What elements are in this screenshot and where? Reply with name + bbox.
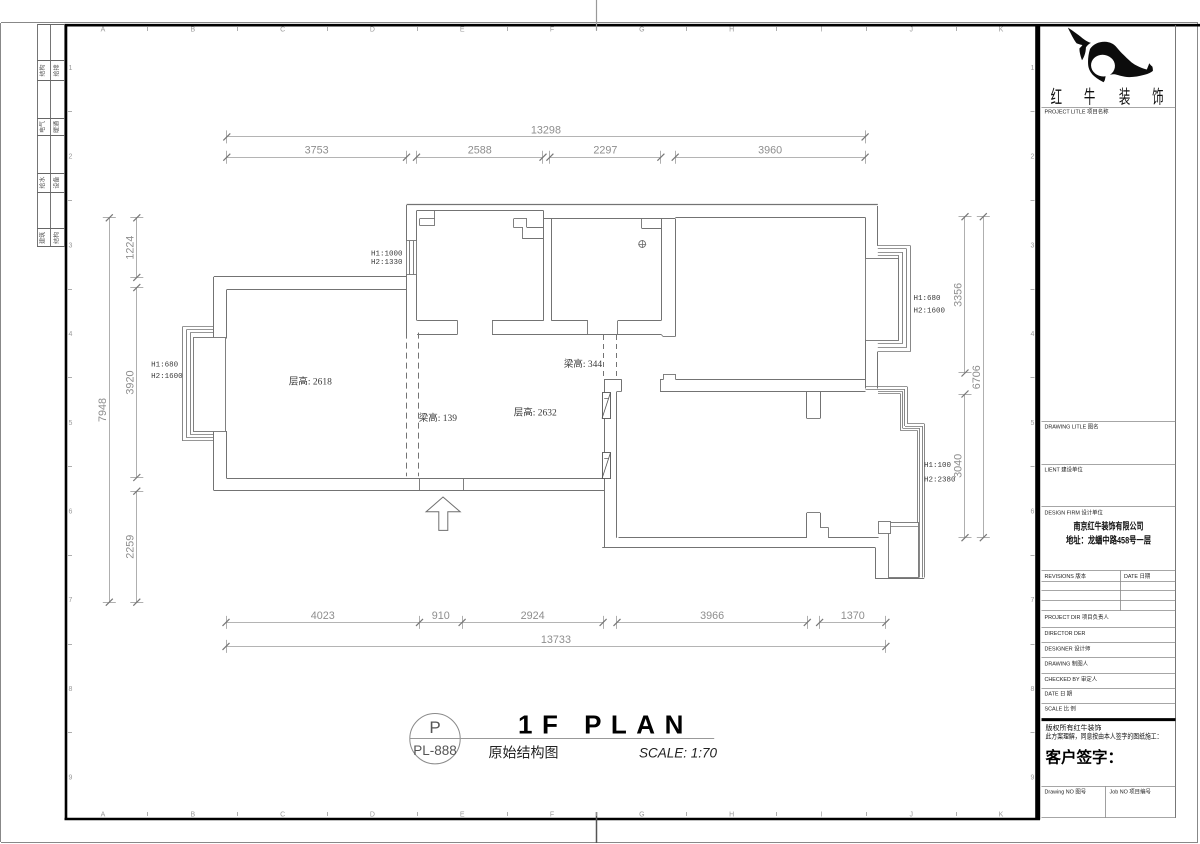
svg-text:LIENT 建设单位: LIENT 建设单位 (1045, 466, 1084, 474)
svg-text:3920: 3920 (124, 371, 136, 395)
svg-text:A: A (101, 812, 106, 819)
svg-text:D: D (370, 27, 375, 34)
svg-text:6: 6 (1031, 509, 1035, 516)
svg-text:版权所有红牛装饰: 版权所有红牛装饰 (1046, 723, 1102, 732)
svg-text:9: 9 (1031, 775, 1035, 782)
svg-text:1: 1 (69, 65, 73, 72)
svg-text:C: C (280, 812, 285, 819)
svg-text:4023: 4023 (311, 610, 335, 622)
svg-text:7: 7 (1031, 597, 1035, 604)
svg-text:E: E (460, 27, 465, 34)
svg-text:1: 1 (1031, 65, 1035, 72)
svg-text:G: G (639, 27, 644, 34)
svg-text:梁高: 344: 梁高: 344 (564, 358, 603, 370)
svg-text:DATE 日 期: DATE 日 期 (1045, 691, 1073, 698)
svg-text:8: 8 (1031, 686, 1035, 693)
svg-text:F: F (550, 812, 554, 819)
svg-text:1370: 1370 (841, 610, 865, 622)
svg-text:Drawing NO 图号: Drawing NO 图号 (1045, 788, 1087, 796)
svg-text:2: 2 (1031, 154, 1035, 161)
svg-text:暖通: 暖通 (52, 121, 60, 133)
svg-text:层高: 2632: 层高: 2632 (514, 407, 557, 419)
svg-text:地址：龙蟠中路458号一层: 地址：龙蟠中路458号一层 (1066, 535, 1151, 547)
svg-text:原始结构图: 原始结构图 (489, 745, 559, 761)
svg-text:电气: 电气 (39, 121, 47, 133)
svg-text:6706: 6706 (971, 365, 983, 389)
svg-text:H2:1600: H2:1600 (914, 308, 946, 316)
svg-text:DRAWING 制图人: DRAWING 制图人 (1045, 660, 1089, 668)
svg-text:建筑: 建筑 (39, 232, 47, 244)
svg-text:2259: 2259 (124, 535, 136, 559)
svg-text:饰: 饰 (1152, 87, 1163, 109)
svg-text:A: A (101, 27, 106, 34)
svg-text:结构: 结构 (39, 64, 47, 76)
svg-text:B: B (190, 812, 195, 819)
svg-text:9: 9 (69, 775, 73, 782)
svg-text:5: 5 (69, 420, 73, 427)
svg-text:DIRECTOR DER: DIRECTOR DER (1045, 631, 1086, 637)
svg-text:DRAWING LITLE 图名: DRAWING LITLE 图名 (1045, 423, 1099, 431)
svg-text:SCALE 比 例: SCALE 比 例 (1045, 705, 1076, 713)
svg-text:Job NO 项目编号: Job NO 项目编号 (1110, 788, 1152, 796)
svg-text:2588: 2588 (468, 145, 492, 157)
svg-text:6: 6 (69, 509, 73, 516)
svg-text:1F PLAN: 1F PLAN (518, 710, 693, 740)
svg-text:DESIGNER 设计师: DESIGNER 设计师 (1045, 645, 1091, 653)
svg-text:E: E (460, 812, 465, 819)
svg-text:3356: 3356 (953, 283, 965, 307)
svg-text:4: 4 (69, 331, 73, 338)
svg-text:PROJECT DIR 项目负责人: PROJECT DIR 项目负责人 (1045, 613, 1110, 621)
svg-text:给水: 给水 (39, 177, 47, 189)
svg-text:3753: 3753 (305, 145, 329, 157)
svg-text:此方案理解，同意按由本人签字的图纸施工：: 此方案理解，同意按由本人签字的图纸施工： (1046, 732, 1163, 741)
svg-text:P: P (429, 718, 440, 737)
svg-text:DESIGN FIRM 设计单位: DESIGN FIRM 设计单位 (1045, 509, 1104, 517)
svg-text:牛: 牛 (1084, 87, 1095, 109)
svg-text:K: K (999, 27, 1004, 34)
svg-text:设备: 设备 (52, 177, 60, 189)
svg-text:结构: 结构 (52, 232, 60, 244)
svg-text:DATE 日期: DATE 日期 (1124, 573, 1150, 580)
svg-text:H2:1330: H2:1330 (371, 259, 403, 267)
svg-text:H1:680: H1:680 (914, 295, 942, 303)
svg-text:J: J (909, 812, 913, 819)
svg-text:梁高: 139: 梁高: 139 (419, 412, 458, 424)
svg-text:2924: 2924 (521, 610, 545, 622)
svg-text:南京红牛装饰有限公司: 南京红牛装饰有限公司 (1074, 521, 1144, 533)
svg-text:I: I (820, 812, 822, 819)
svg-text:H: H (729, 812, 734, 819)
svg-text:H1:680: H1:680 (151, 362, 179, 370)
svg-text:CHECKED BY 审定人: CHECKED BY 审定人 (1045, 675, 1098, 683)
svg-text:3: 3 (69, 242, 73, 249)
svg-text:13298: 13298 (531, 124, 561, 136)
svg-text:红: 红 (1051, 87, 1062, 109)
svg-text:H1:100: H1:100 (924, 462, 952, 470)
svg-text:H2:1600: H2:1600 (151, 373, 183, 381)
svg-text:D: D (370, 812, 375, 819)
svg-text:REVISIONS 版本: REVISIONS 版本 (1045, 572, 1087, 580)
svg-text:装: 装 (1119, 87, 1130, 109)
svg-text:SCALE: 1:70: SCALE: 1:70 (639, 746, 718, 761)
svg-text:H1:1000: H1:1000 (371, 251, 403, 259)
svg-text:K: K (999, 812, 1004, 819)
svg-text:PL-888: PL-888 (413, 743, 457, 758)
svg-text:C: C (280, 27, 285, 34)
svg-text:B: B (190, 27, 195, 34)
svg-text:8: 8 (69, 686, 73, 693)
svg-text:2: 2 (69, 154, 73, 161)
svg-text:层高: 2618: 层高: 2618 (289, 376, 332, 388)
svg-text:3960: 3960 (758, 145, 782, 157)
svg-text:4: 4 (1031, 331, 1035, 338)
svg-text:F: F (550, 27, 554, 34)
svg-text:H: H (729, 27, 734, 34)
svg-text:3966: 3966 (700, 610, 724, 622)
svg-text:5: 5 (1031, 420, 1035, 427)
svg-text:1224: 1224 (124, 236, 136, 260)
svg-text:I: I (820, 27, 822, 34)
svg-text:7948: 7948 (97, 398, 109, 422)
svg-text:3040: 3040 (953, 454, 965, 478)
svg-text:J: J (909, 27, 913, 34)
svg-text:3: 3 (1031, 242, 1035, 249)
svg-text:客户签字：: 客户签字： (1046, 748, 1124, 767)
svg-text:7: 7 (69, 597, 73, 604)
svg-text:PROJECT LITLE 项目名称: PROJECT LITLE 项目名称 (1045, 108, 1110, 116)
svg-text:H2:2380: H2:2380 (924, 477, 956, 485)
svg-text:2297: 2297 (593, 145, 617, 157)
svg-text:给排: 给排 (52, 64, 60, 76)
svg-text:910: 910 (432, 610, 450, 622)
svg-text:G: G (639, 812, 644, 819)
svg-text:13733: 13733 (541, 634, 571, 646)
